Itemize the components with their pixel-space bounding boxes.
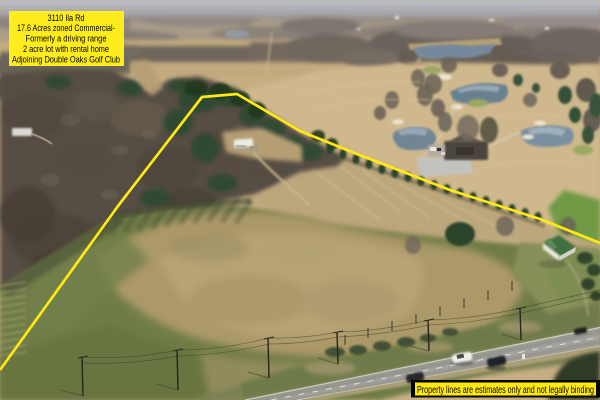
svg-text:2 acre lot with rental home: 2 acre lot with rental home [23, 44, 109, 54]
svg-text:17.6 Acres zoned Commercial-: 17.6 Acres zoned Commercial- [17, 23, 115, 33]
svg-text:Adjoining Double Oaks Golf Clu: Adjoining Double Oaks Golf Club [12, 54, 120, 64]
svg-text:Formerly a driving range: Formerly a driving range [26, 34, 107, 44]
svg-text:Property lines are estimates o: Property lines are estimates only and no… [417, 384, 594, 396]
svg-text:3110 Ila Rd: 3110 Ila Rd [48, 13, 85, 23]
